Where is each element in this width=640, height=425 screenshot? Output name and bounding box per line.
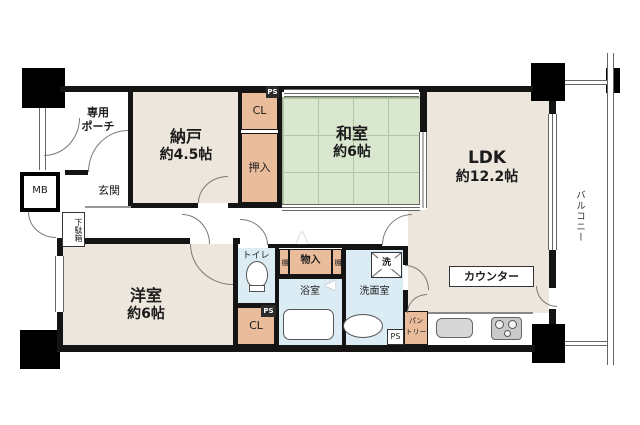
door-arc-ldk [382, 214, 412, 245]
ldk-label: LDK 約12.2帖 [438, 148, 536, 187]
counter-box: カウンター [449, 266, 534, 287]
wall-right-mid [549, 250, 556, 288]
wall-monoire-bottom [279, 275, 342, 279]
wall-nando-bottom-left [133, 203, 198, 208]
shelf-right-label: 棚 [333, 256, 341, 269]
nando-label: 納戸 約4.5帖 [140, 127, 232, 165]
stove-burner-1 [495, 320, 504, 329]
door-arc-mb [28, 212, 56, 238]
balcony-label: バルコニー [569, 184, 585, 248]
pillar-bottom-right [532, 324, 565, 363]
ps-shaft-toilet: PS [261, 305, 276, 317]
getabako-label: 下駄箱 [66, 214, 82, 246]
genkan-step-line [85, 206, 131, 208]
ps-shaft-kitchen: PS [387, 329, 404, 345]
wall-porch-nando [128, 92, 133, 208]
toilet-label: トイレ [239, 251, 273, 262]
pantry-label: パントリー [405, 316, 427, 337]
bathroom-label: 浴室 [289, 286, 331, 299]
toilet-tank-icon [249, 285, 265, 292]
bathtub-icon [283, 309, 334, 340]
yoshitsu-label: 洋室 約6帖 [100, 286, 192, 324]
basin-icon [343, 314, 383, 338]
kitchen-counter-edge [427, 312, 533, 314]
wall-bottom [57, 345, 535, 352]
porch-label: 専用ポーチ [72, 106, 124, 134]
sliding-door-washitsu-ldk [419, 132, 427, 208]
balcony-railing [607, 53, 614, 365]
wall-washroom-top [342, 246, 408, 250]
door-arc-hall [182, 214, 210, 244]
wall-porch-genkan [65, 170, 88, 175]
cl-upper-label: CL [248, 104, 271, 118]
washer-label: 洗 [378, 258, 395, 269]
genkan-label: 玄関 [92, 184, 126, 198]
window-washitsu-top [284, 89, 419, 97]
oshiire-label: 押入 [243, 161, 276, 175]
balcony-divider-bottom [565, 341, 607, 346]
kitchen-sink-icon [436, 318, 473, 338]
pillar-top-right [531, 63, 565, 101]
mb-label: MB [24, 185, 56, 198]
ps-shaft-top: PS [266, 86, 279, 98]
wall-right-low [549, 309, 556, 324]
balcony-divider-top [565, 80, 607, 85]
door-arc-toilet [240, 219, 268, 245]
cl-lower-label: CL [244, 319, 268, 333]
wall-nando-bottom-right [228, 203, 282, 208]
stove-burner-2 [508, 320, 517, 329]
wall-washitsu-ldk-top [420, 92, 427, 132]
wall-right-stub [549, 101, 556, 114]
washroom-label: 洗面室 [347, 286, 402, 299]
folding-door-monoire [296, 231, 308, 244]
stove-burner-3 [504, 330, 511, 337]
floor-plan: PS PS PS 洗 カウンター 専用ポーチ 納戸 約4.5帖 和室 約6帖 L… [0, 0, 640, 425]
pillar-bottom-left [20, 330, 60, 369]
wall-washroom-right-top [403, 250, 408, 265]
window-ldk-balcony [548, 114, 557, 250]
wall-closet-right [278, 92, 282, 205]
shelf-left-label: 棚 [280, 256, 288, 269]
toilet-icon [246, 261, 268, 288]
monoire-label: 物入 [291, 255, 330, 268]
sliding-door-washitsu-hall [282, 204, 420, 211]
pillar-top-left [22, 68, 65, 108]
washitsu-label: 和室 約6帖 [308, 124, 396, 162]
door-arc-front-door [88, 130, 128, 172]
window-yoshitsu-left [55, 256, 64, 312]
